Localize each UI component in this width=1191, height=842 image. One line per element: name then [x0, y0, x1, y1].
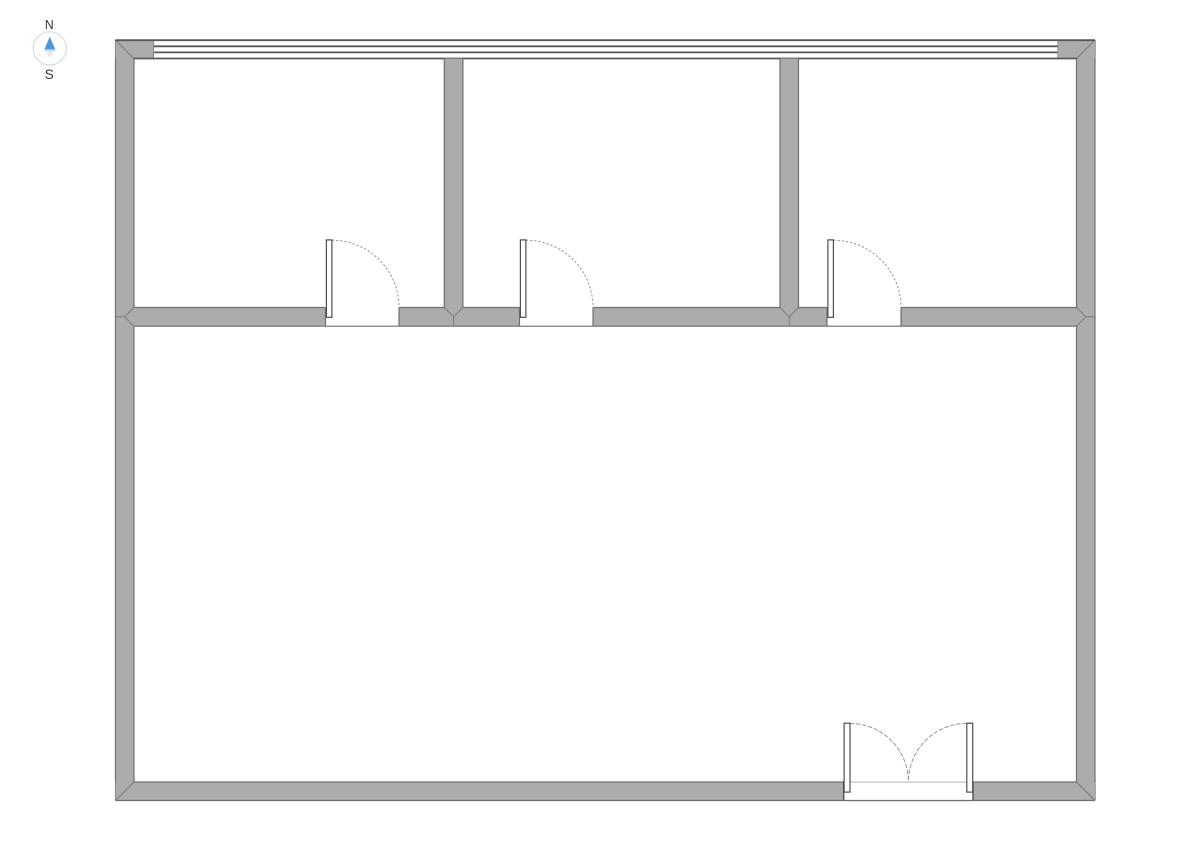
svg-text:S: S: [45, 67, 54, 82]
svg-text:N: N: [45, 17, 54, 32]
